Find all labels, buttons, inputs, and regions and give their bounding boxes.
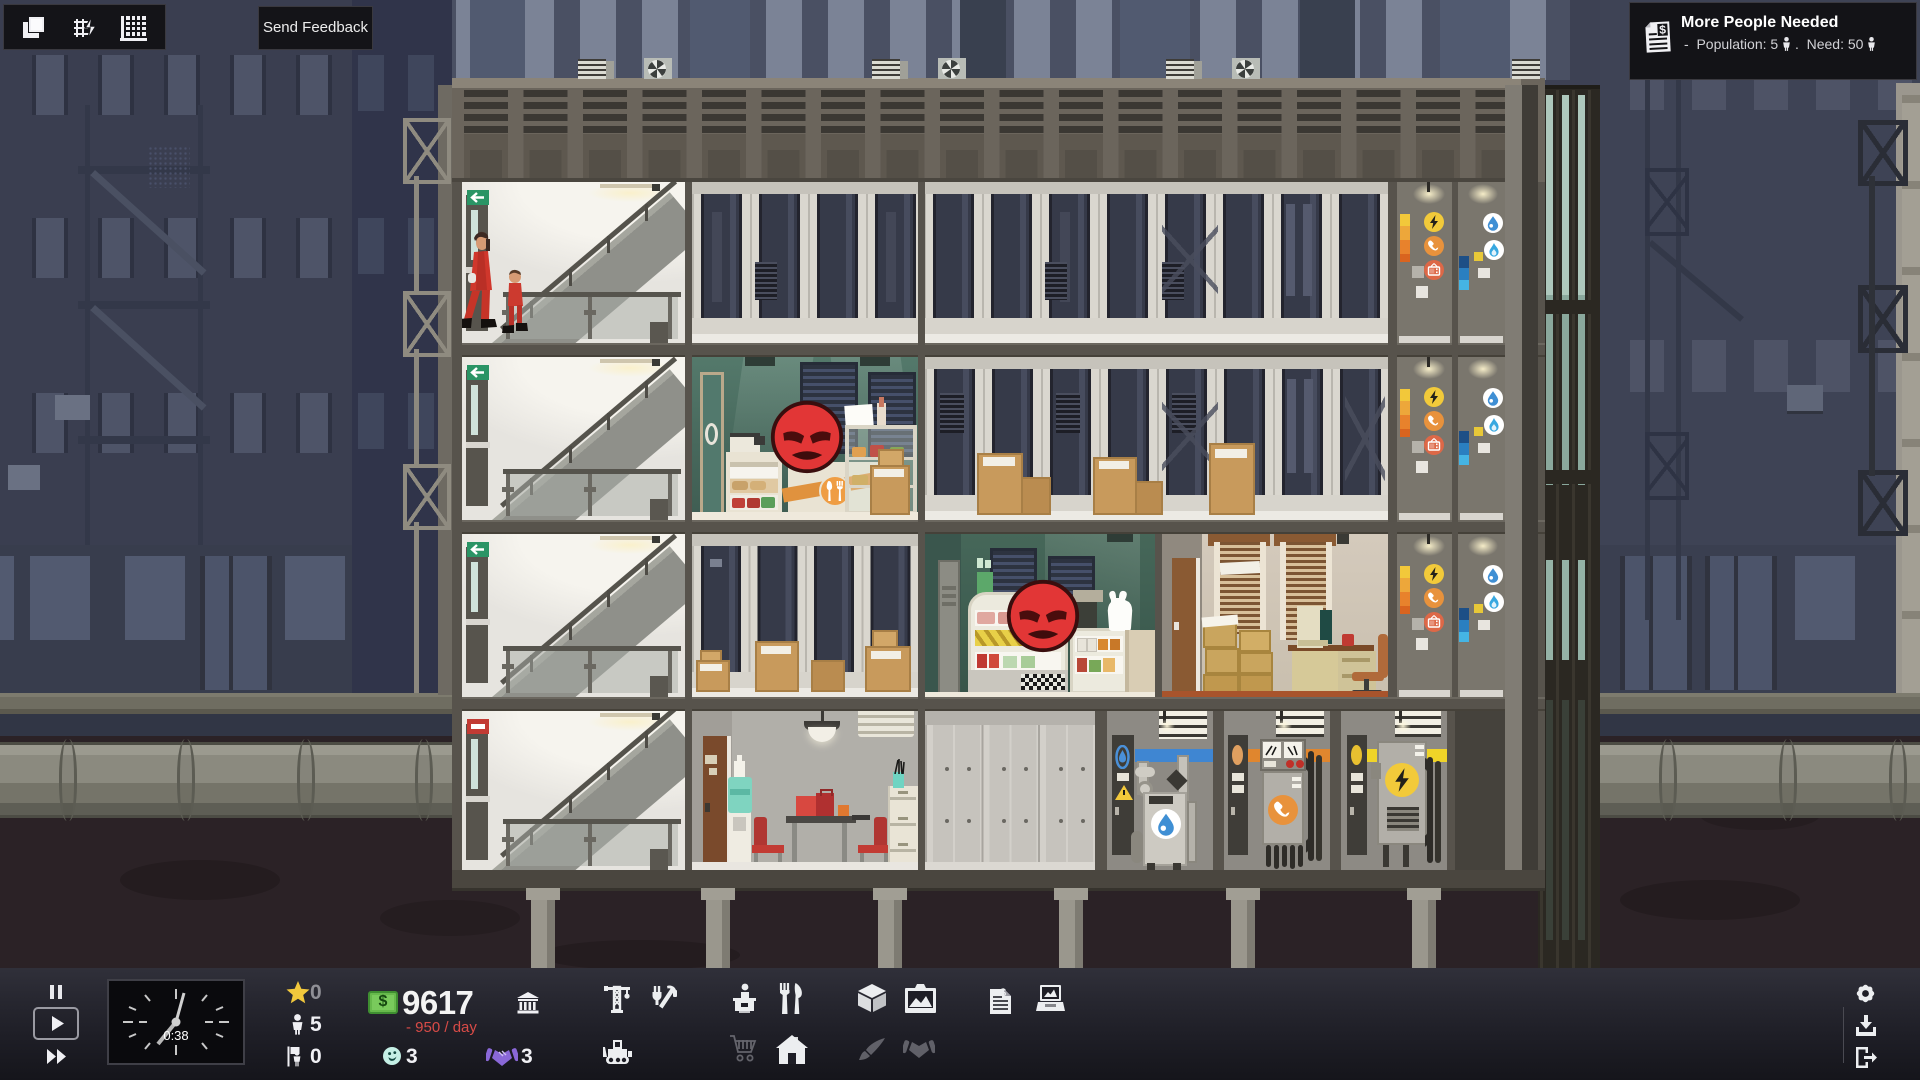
svg-text:$: $: [1659, 23, 1667, 37]
svg-text:$: $: [1000, 987, 1006, 999]
svg-text:0:38: 0:38: [163, 1028, 188, 1043]
